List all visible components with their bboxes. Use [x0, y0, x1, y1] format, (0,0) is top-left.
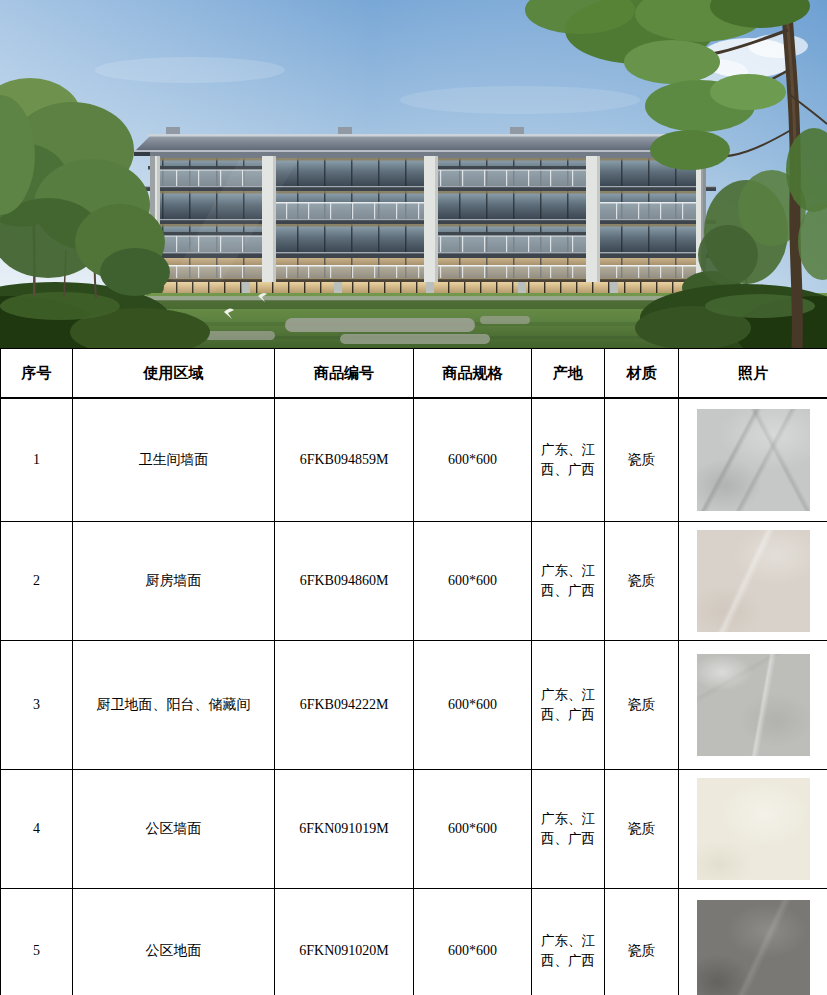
tile-spec-sheet: 序号 使用区域 商品编号 商品规格 产地 材质 照片 1 卫生间墙面 6FKB0…: [0, 0, 827, 995]
cell-material: 瓷质: [605, 889, 679, 995]
cell-spec: 600*600: [414, 889, 532, 995]
table-row: 4 公区墙面 6FKN091019M 600*600 广东、江西、广西 瓷质: [1, 770, 827, 889]
cell-index: 1: [1, 398, 73, 522]
table-row: 5 公区地面 6FKN091020M 600*600 广东、江西、广西 瓷质: [1, 889, 827, 995]
cell-origin: 广东、江西、广西: [532, 641, 605, 770]
cell-code: 6FKN091020M: [275, 889, 414, 995]
cell-photo: [679, 398, 827, 522]
tile-photo-gray-marble: [697, 654, 810, 756]
cell-spec: 600*600: [414, 641, 532, 770]
col-header-spec: 商品规格: [414, 349, 532, 399]
tile-spec-table: 序号 使用区域 商品编号 商品规格 产地 材质 照片 1 卫生间墙面 6FKB0…: [0, 348, 827, 995]
col-header-index: 序号: [1, 349, 73, 399]
table-row: 3 厨卫地面、阳台、储藏间 6FKB094222M 600*600 广东、江西、…: [1, 641, 827, 770]
cell-spec: 600*600: [414, 398, 532, 522]
cell-origin: 广东、江西、广西: [532, 889, 605, 995]
col-header-code: 商品编号: [275, 349, 414, 399]
tile-photo-cream: [697, 778, 810, 880]
cell-index: 3: [1, 641, 73, 770]
building-rendering-photo: [0, 0, 827, 348]
cell-photo: [679, 522, 827, 641]
cell-area: 公区墙面: [73, 770, 275, 889]
cell-origin: 广东、江西、广西: [532, 522, 605, 641]
col-header-photo: 照片: [679, 349, 827, 399]
cell-index: 5: [1, 889, 73, 995]
cell-area: 公区地面: [73, 889, 275, 995]
cell-spec: 600*600: [414, 522, 532, 641]
cell-code: 6FKB094222M: [275, 641, 414, 770]
cell-origin: 广东、江西、广西: [532, 398, 605, 522]
cell-material: 瓷质: [605, 398, 679, 522]
tile-photo-light-gray-marble: [697, 409, 810, 511]
cell-area: 厨卫地面、阳台、储藏间: [73, 641, 275, 770]
cell-code: 6FKB094860M: [275, 522, 414, 641]
cell-area: 厨房墙面: [73, 522, 275, 641]
tile-photo-dark-gray: [697, 900, 810, 995]
col-header-material: 材质: [605, 349, 679, 399]
building-photo-svg: [0, 0, 827, 348]
building: [134, 127, 722, 300]
cell-photo: [679, 889, 827, 995]
cell-index: 2: [1, 522, 73, 641]
tile-photo-warm-beige: [697, 530, 810, 632]
cell-code: 6FKN091019M: [275, 770, 414, 889]
cell-area: 卫生间墙面: [73, 398, 275, 522]
col-header-origin: 产地: [532, 349, 605, 399]
cell-photo: [679, 770, 827, 889]
table-row: 1 卫生间墙面 6FKB094859M 600*600 广东、江西、广西 瓷质: [1, 398, 827, 522]
cell-material: 瓷质: [605, 770, 679, 889]
cell-photo: [679, 641, 827, 770]
col-header-area: 使用区域: [73, 349, 275, 399]
cell-origin: 广东、江西、广西: [532, 770, 605, 889]
cell-code: 6FKB094859M: [275, 398, 414, 522]
cell-material: 瓷质: [605, 641, 679, 770]
header-row: 序号 使用区域 商品编号 商品规格 产地 材质 照片: [1, 349, 827, 399]
table-row: 2 厨房墙面 6FKB094860M 600*600 广东、江西、广西 瓷质: [1, 522, 827, 641]
cell-spec: 600*600: [414, 770, 532, 889]
cell-material: 瓷质: [605, 522, 679, 641]
cell-index: 4: [1, 770, 73, 889]
